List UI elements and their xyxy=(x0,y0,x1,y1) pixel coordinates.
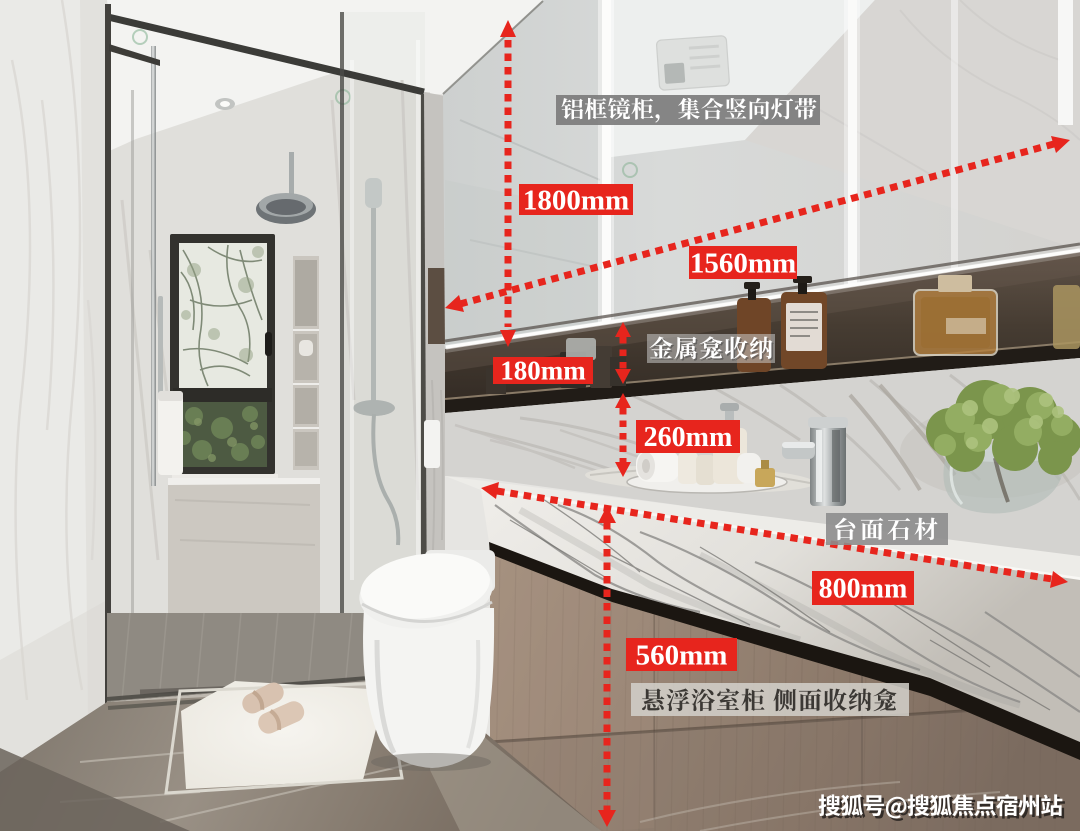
svg-text:1800mm: 1800mm xyxy=(523,184,629,216)
svg-text:260mm: 260mm xyxy=(644,422,733,453)
svg-text:180mm: 180mm xyxy=(500,356,586,386)
svg-text:560mm: 560mm xyxy=(636,639,728,671)
svg-text:800mm: 800mm xyxy=(819,574,908,605)
svg-text:1560mm: 1560mm xyxy=(690,247,796,279)
